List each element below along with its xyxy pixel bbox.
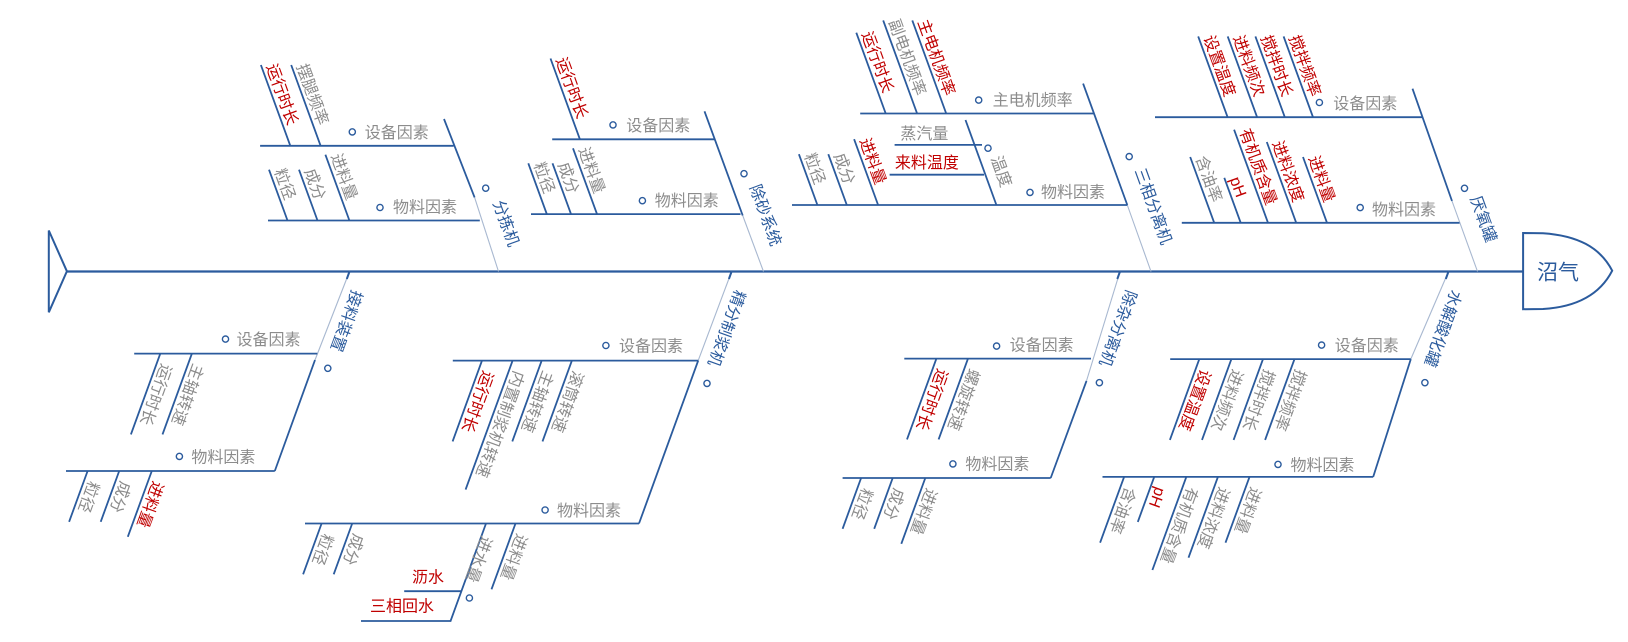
svg-text:来料温度: 来料温度 bbox=[895, 154, 959, 172]
svg-text:沥水: 沥水 bbox=[412, 569, 444, 587]
svg-text:三相回水: 三相回水 bbox=[370, 598, 434, 616]
svg-text:设备因素: 设备因素 bbox=[1010, 337, 1074, 355]
svg-text:设备因素: 设备因素 bbox=[365, 124, 429, 142]
svg-text:物料因素: 物料因素 bbox=[393, 199, 457, 217]
svg-text:物料因素: 物料因素 bbox=[1041, 183, 1105, 201]
svg-text:物料因素: 物料因素 bbox=[965, 455, 1029, 473]
svg-text:沼气: 沼气 bbox=[1537, 262, 1579, 285]
svg-text:物料因素: 物料因素 bbox=[1291, 456, 1355, 474]
svg-text:物料因素: 物料因素 bbox=[655, 192, 719, 210]
svg-text:设备因素: 设备因素 bbox=[1333, 95, 1397, 113]
svg-text:设备因素: 设备因素 bbox=[626, 117, 690, 135]
svg-text:主电机频率: 主电机频率 bbox=[993, 92, 1073, 110]
svg-text:设备因素: 设备因素 bbox=[619, 338, 683, 356]
svg-text:设备因素: 设备因素 bbox=[1335, 337, 1399, 355]
svg-text:物料因素: 物料因素 bbox=[1372, 201, 1436, 219]
svg-text:设备因素: 设备因素 bbox=[237, 331, 301, 349]
svg-text:物料因素: 物料因素 bbox=[557, 502, 621, 520]
svg-text:蒸汽量: 蒸汽量 bbox=[900, 125, 948, 143]
svg-text:物料因素: 物料因素 bbox=[191, 448, 255, 466]
